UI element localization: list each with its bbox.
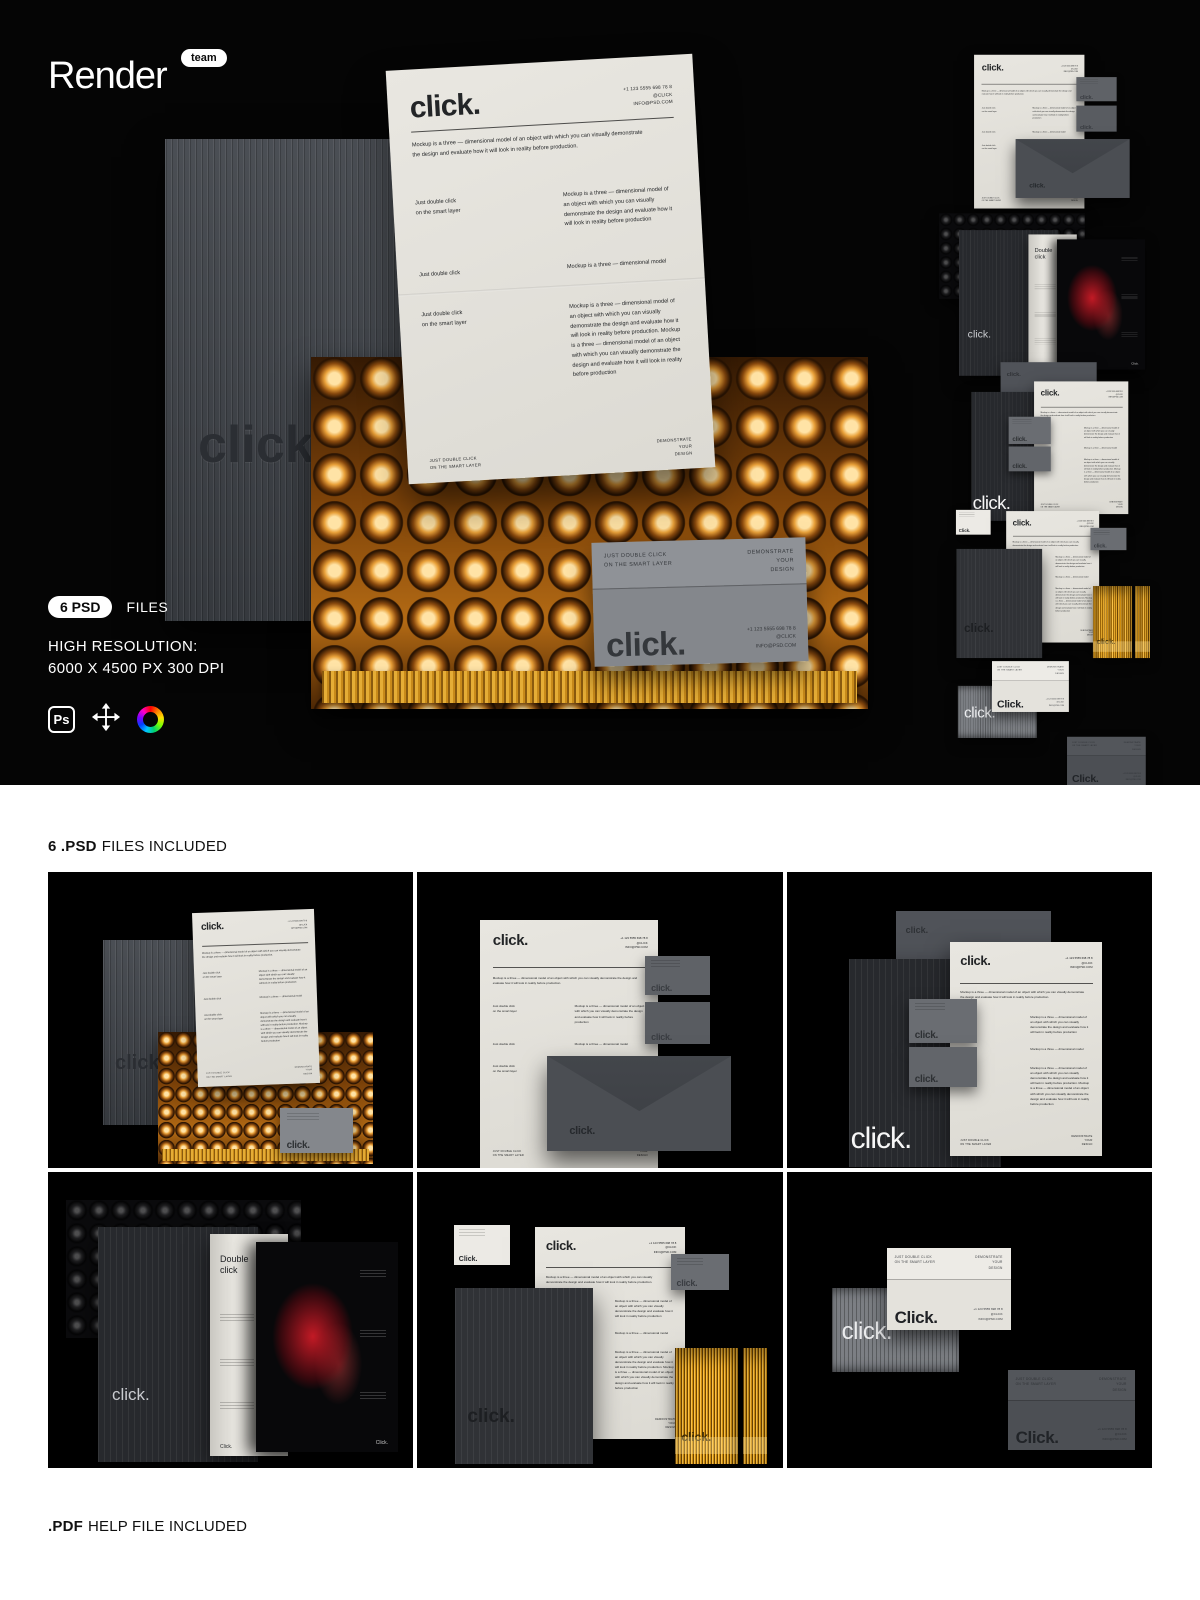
business-card-ribbed: click. [909, 1047, 977, 1087]
card-logo: click. [651, 1032, 672, 1042]
card-logo: click. [1094, 543, 1107, 549]
letterhead-paragraph: Mockup is a three — dimensional model [260, 994, 309, 1000]
card-crease [887, 1279, 1011, 1280]
business-card: click. [671, 1254, 729, 1290]
letterhead-paragraph: Mockup is a three — dimensional model of… [1055, 556, 1092, 569]
letterhead-paragraph: Mockup is a three — dimensional model [1030, 1047, 1091, 1052]
mockup-scene-dark-stationery: click. click. +1 123 5555 698 78 8@CLICK… [787, 872, 1152, 1167]
hero-section: Render team click. click. +1 123 5555 69… [0, 0, 1200, 785]
card-logo: Click. [1016, 1428, 1059, 1448]
resolution-line1: HIGH RESOLUTION: [48, 636, 224, 658]
folder-logo: click. [112, 1385, 150, 1405]
gallery-heading-rest: FILES INCLUDED [102, 838, 227, 855]
page-microtext [220, 1402, 254, 1411]
mockup-scene-magazine-black-mailer: click. Doubleclick Click. Click. [48, 1172, 413, 1467]
card-microtext [1080, 79, 1098, 83]
letterhead-rule [960, 983, 1092, 984]
move-icon [91, 702, 121, 737]
page-microtext [360, 1330, 386, 1339]
letterhead-footer-left: JUST DOUBLE CLICKON THE SMART LAYER [429, 454, 481, 471]
letterhead-logo: click. [960, 953, 990, 968]
letterhead-footer-left: JUST DOUBLE CLICKON THE SMART LAYER [960, 1139, 991, 1148]
letterhead-hint: Just double click [982, 130, 996, 133]
card-logo: click. [842, 1318, 892, 1346]
ribbed-dark-folder: click. [455, 1288, 593, 1464]
card-crease [593, 583, 807, 590]
letterhead-footer-right: DEMONSTRATEYOURDESIGN [1071, 1135, 1092, 1148]
card-contact: +1 123 5555 698 78 8@CLICKINFO@PSD.COM [1046, 698, 1064, 707]
letterhead-paragraph: Mockup is a three — dimensional model of… [569, 297, 685, 381]
letterhead-footer-right: DEMONSTRATEYOURDESIGN [295, 1066, 313, 1077]
feature-icons: Ps [48, 702, 164, 737]
letterhead-paragraph: Mockup is a three — dimensional model of… [1055, 587, 1092, 612]
letterhead-paragraph: Mockup is a three — dimensional model [1055, 576, 1092, 579]
mockup-scene-folder-letterhead-gold-mailer: click. click. +1 123 5555 698 78 8@CLICK… [48, 872, 413, 1167]
gallery-heading: 6 .PSDFILES INCLUDED [48, 838, 227, 855]
letterhead-intro: Mockup is a three — dimensional model of… [960, 990, 1085, 1000]
letterhead-paragraph: Mockup is a three — dimensional model of… [615, 1350, 675, 1391]
folder-logo: click. [467, 1406, 515, 1428]
card-demo: DEMONSTRATEYOURDESIGN [975, 1255, 1003, 1271]
letterhead-intro: Mockup is a three — dimensional model of… [1013, 541, 1089, 547]
letterhead-rule [1013, 536, 1094, 537]
card-microtext [459, 1229, 484, 1236]
card-contact: +1 123 5555 698 78 8@CLICKINFO@PSD.COM [747, 624, 796, 651]
dark-business-card: JUST DOUBLE CLICKON THE SMART LAYER DEMO… [1067, 737, 1146, 785]
photoshop-icon: Ps [48, 706, 75, 733]
letterhead-paragraph: Mockup is a three — dimensional model of… [563, 185, 677, 230]
page-microtext [1035, 284, 1056, 290]
thumbnail-letterhead-envelope: click. +1 123 5555 698 78 8@CLICKINFO@PS… [935, 25, 1165, 210]
card-microtext [959, 512, 975, 516]
letterhead-paragraph: Mockup is a three — dimensional model of… [575, 1004, 646, 1024]
card-logo: Click. [959, 529, 971, 533]
card-hint: JUST DOUBLE CLICKON THE SMART LAYER [1072, 741, 1097, 748]
card-contact: +1 123 5555 698 78 8@CLICKINFO@PSD.COM [1097, 1427, 1126, 1442]
magazine-title: Doubleclick [220, 1254, 249, 1276]
white-business-card: Click. [454, 1225, 510, 1265]
business-card: click. [645, 956, 710, 995]
letterhead-logo: click. [201, 921, 224, 933]
letterhead-hint: Just double clickon the smart layer [493, 1004, 517, 1014]
psd-files-row: 6 PSD FILES [48, 596, 168, 618]
letterhead-intro: Mockup is a three — dimensional model of… [546, 1275, 669, 1285]
overlay-logo: click. [851, 1122, 912, 1156]
mockup-scene-business-cards: click. JUST DOUBLE CLICKON THE SMART LAY… [787, 1172, 1152, 1467]
business-card-hero: JUST DOUBLE CLICKON THE SMART LAYER DEMO… [591, 537, 808, 667]
mockup-scene-business-cards: click. JUST DOUBLE CLICKON THE SMART LAY… [930, 614, 1156, 785]
card-logo: click. [915, 1030, 938, 1041]
card-microtext [915, 1003, 946, 1010]
letterhead-hint: Just double clickon the smart layer [415, 197, 461, 219]
letterhead-rule [546, 1267, 677, 1268]
thumbnail-business-cards: click. JUST DOUBLE CLICKON THE SMART LAY… [930, 614, 1160, 785]
pdf-help-rest: HELP FILE INCLUDED [88, 1518, 247, 1535]
envelope: click. [547, 1056, 731, 1151]
white-business-card: JUST DOUBLE CLICKON THE SMART LAYER DEMO… [992, 661, 1069, 712]
business-card-ribbed: click. [1076, 106, 1116, 132]
envelope: click. [1016, 139, 1130, 198]
card-crease [1067, 756, 1146, 757]
card-microtext [1012, 419, 1031, 423]
page-logo: Click. [220, 1444, 232, 1450]
envelope-logo: click. [1029, 182, 1045, 189]
card-logo: Click. [895, 1308, 938, 1328]
logo-wordmark: Render [48, 55, 167, 97]
letterhead-logo: click. [409, 88, 481, 126]
letterhead-footer-right: DEMONSTRATEYOURDESIGN [656, 435, 692, 458]
business-card-ribbed: click. [645, 1002, 710, 1044]
letterhead-intro: Mockup is a three — dimensional model of… [982, 89, 1072, 95]
card-demo: DEMONSTRATEYOURDESIGN [1047, 665, 1064, 675]
letterhead-hint: Just double clickon the smart layer [421, 309, 467, 331]
letterhead-footer-left: JUST DOUBLE CLICKON THE SMART LAYER [206, 1072, 232, 1080]
letterhead-logo: click. [1041, 388, 1060, 397]
card-logo: click. [287, 1140, 310, 1151]
letterhead-paragraph: Mockup is a three — dimensional model [615, 1331, 675, 1336]
letterhead-contact: +1 123 5555 698 78 8@CLICKINFO@PSD.COM [649, 1241, 676, 1255]
letterhead-paragraph: Mockup is a three — dimensional model of… [1084, 427, 1122, 440]
card-hint: JUST DOUBLE CLICKON THE SMART LAYER [895, 1255, 935, 1266]
letterhead-paragraph: Mockup is a three — dimensional model [575, 1042, 646, 1047]
card-logo: click. [651, 983, 672, 993]
grid-image-dark-stationery: click. click. +1 123 5555 698 78 8@CLICK… [787, 872, 1152, 1168]
card-microtext [287, 1113, 320, 1120]
gallery-section: 6 .PSDFILES INCLUDED click. click. +1 12… [0, 785, 1200, 1600]
grid-image-business-cards: click. JUST DOUBLE CLICKON THE SMART LAY… [787, 1172, 1152, 1468]
business-card: click. [1090, 528, 1126, 550]
grid-image-magazine-black-mailer: click. Doubleclick Click. Click. [48, 1172, 413, 1468]
card-logo: click. [606, 624, 687, 664]
letterhead-intro: Mockup is a three — dimensional model of… [412, 129, 645, 161]
color-wheel-icon [137, 706, 164, 733]
letterhead-paragraph: Mockup is a three — dimensional model of… [259, 968, 308, 986]
grid-image-folder-gold-mailer: click. click. +1 123 5555 698 78 8@CLICK… [48, 872, 413, 1168]
letterhead-paragraph: Mockup is a three — dimensional model of… [1033, 107, 1077, 120]
letterhead-contact: +1 123 5555 698 78 8@CLICKINFO@PSD.COM [1106, 390, 1123, 399]
team-badge: team [181, 49, 227, 67]
letterhead-hint: Just double click [204, 997, 222, 1002]
card-logo: click. [915, 1074, 938, 1085]
card-hint: JUST DOUBLE CLICKON THE SMART LAYER [997, 665, 1022, 672]
page-microtext [1121, 257, 1137, 263]
business-card: click. [280, 1108, 353, 1153]
paper-logo: click. [1007, 371, 1021, 377]
letterhead-hint: Just double clickon the smart layer [203, 971, 222, 980]
card-logo: click. [1080, 124, 1093, 130]
page-microtext [220, 1359, 254, 1368]
letterhead-hint: Just double click [419, 269, 461, 281]
book-logo: click. [681, 1430, 711, 1444]
letterhead-logo: click. [493, 932, 528, 949]
white-business-card: Click. [956, 510, 991, 535]
resolution-line2: 6000 X 4500 PX 300 DPI [48, 658, 224, 680]
letterhead-mockup: click. +1 123 5555 698 78 8@CLICKINFO@PS… [192, 909, 320, 1087]
mockup-scene-letterhead-envelope: click. +1 123 5555 698 78 8@CLICKINFO@PS… [935, 25, 1161, 208]
magazine-right-page: Click. [256, 1242, 398, 1452]
card-logo: Click. [997, 698, 1024, 710]
page-logo: Click. [376, 1440, 388, 1446]
letterhead-crease [398, 277, 705, 296]
letterhead-rule [1041, 407, 1123, 408]
letterhead-hint: Just double clickon the smart layer [982, 144, 997, 150]
resolution-note: HIGH RESOLUTION: 6000 X 4500 PX 300 DPI [48, 636, 224, 680]
letterhead-paragraph: Mockup is a three — dimensional model of… [1030, 1066, 1091, 1107]
letterhead-contact: +1 123 5555 698 78 8@CLICKINFO@PSD.COM [623, 83, 673, 108]
card-demo: DEMONSTRATEYOURDESIGN [1124, 741, 1141, 751]
card-microtext [651, 960, 680, 967]
letterhead-rule [493, 967, 648, 968]
business-card: click. [909, 999, 977, 1043]
psd-count-suffix: FILES [126, 599, 168, 615]
card-microtext [677, 1258, 703, 1265]
letterhead-paragraph: Mockup is a three — dimensional model of… [1030, 1015, 1091, 1035]
letterhead-footer-right: DEMONSTRATEYOURDESIGN [655, 1418, 676, 1431]
letterhead-logo: click. [982, 62, 1004, 73]
business-card: click. [1009, 417, 1051, 444]
page-microtext [360, 1270, 386, 1279]
card-hint: JUST DOUBLE CLICKON THE SMART LAYER [1016, 1377, 1056, 1388]
gold-ribbed-book: click. [675, 1348, 738, 1464]
mockup-scene-letterhead-gold-books: Click. click. +1 123 5555 698 78 8@CLICK… [417, 1172, 782, 1467]
renderteam-logo: Render team [48, 57, 167, 95]
grid-image-letterhead-envelope: click. +1 123 5555 698 78 8@CLICKINFO@PS… [417, 872, 782, 1168]
letterhead-intro: Mockup is a three — dimensional model of… [493, 976, 639, 986]
letterhead-hero: click. +1 123 5555 698 78 8@CLICKINFO@PS… [386, 54, 716, 484]
preview-grid: click. click. +1 123 5555 698 78 8@CLICK… [48, 872, 1152, 1468]
folder-logo: click. [198, 415, 328, 475]
letterhead-hint: Just double click [493, 1042, 515, 1047]
card-logo: click. [1012, 436, 1026, 443]
letterhead-hint: Just double clickon the smart layer [982, 107, 997, 113]
letterhead-contact: +1 123 5555 698 78 8@CLICKINFO@PSD.COM [1061, 65, 1078, 74]
card-crease [992, 680, 1069, 681]
business-card: click. [1076, 77, 1116, 101]
letterhead-paragraph: Mockup is a three — dimensional model [567, 257, 679, 273]
card-logo: click. [964, 705, 995, 722]
psd-count-badge: 6 PSD [48, 596, 112, 618]
letterhead-intro: Mockup is a three — dimensional model of… [202, 949, 302, 961]
letterhead-paragraph: Mockup is a three — dimensional model of… [260, 1010, 310, 1044]
envelope-logo: click. [569, 1125, 595, 1137]
card-logo: click. [677, 1278, 698, 1288]
gold-ribbed-book-spine [743, 1348, 767, 1464]
letterhead-rule [202, 942, 308, 947]
letterhead-contact: +1 123 5555 698 78 8@CLICKINFO@PSD.COM [620, 936, 647, 950]
letterhead-footer-left: JUST DOUBLE CLICKON THE SMART LAYER [493, 1150, 524, 1159]
card-contact: +1 123 5555 698 78 8@CLICKINFO@PSD.COM [973, 1307, 1002, 1322]
mockup-scene-letterhead-envelope: click. +1 123 5555 698 78 8@CLICKINFO@PS… [417, 872, 782, 1167]
card-microtext [1094, 530, 1110, 534]
card-demo: DEMONSTRATEYOURDESIGN [1099, 1377, 1127, 1393]
white-business-card: JUST DOUBLE CLICKON THE SMART LAYER DEMO… [887, 1248, 1011, 1330]
letterhead-logo: click. [546, 1238, 576, 1253]
card-demo: DEMONSTRATEYOURDESIGN [747, 548, 794, 577]
grid-image-letterhead-gold-books: Click. click. +1 123 5555 698 78 8@CLICK… [417, 1172, 782, 1468]
pdf-help-note: .PDFHELP FILE INCLUDED [48, 1518, 247, 1535]
card-crease [1008, 1400, 1135, 1401]
letterhead-intro: Mockup is a three — dimensional model of… [1041, 411, 1118, 417]
gallery-heading-bold: 6 .PSD [48, 838, 97, 855]
card-logo: Click. [1072, 773, 1099, 785]
paper-logo: click. [906, 925, 929, 935]
page-microtext [1121, 294, 1137, 300]
letterhead-contact: +1 123 5555 698 78 8@CLICKINFO@PSD.COM [287, 920, 307, 931]
pdf-help-bold: .PDF [48, 1518, 83, 1535]
letterhead-hint: Just double clickon the smart layer [204, 1013, 223, 1022]
card-logo: Click. [459, 1256, 478, 1263]
letterhead-paragraph: Mockup is a three — dimensional model of… [615, 1299, 675, 1319]
letterhead-rule [982, 84, 1078, 85]
letterhead-paragraph: Mockup is a three — dimensional model [1033, 130, 1077, 133]
page-microtext [220, 1314, 254, 1323]
page-microtext [360, 1392, 386, 1401]
letterhead-contact: +1 123 5555 698 78 8@CLICKINFO@PSD.COM [1065, 956, 1092, 970]
card-logo: click. [1012, 463, 1026, 470]
magazine-title: Doubleclick [1035, 247, 1053, 260]
card-contact: +1 123 5555 698 78 8@CLICKINFO@PSD.COM [1123, 772, 1141, 781]
card-hint: JUST DOUBLE CLICKON THE SMART LAYER [604, 551, 673, 571]
business-card-ribbed: click. [1009, 447, 1051, 472]
letterhead-paragraph: Mockup is a three — dimensional model [1084, 446, 1122, 449]
page-microtext [1035, 312, 1056, 318]
card-logo: click. [1080, 94, 1093, 100]
dark-business-card: JUST DOUBLE CLICKON THE SMART LAYER DEMO… [1008, 1370, 1135, 1450]
letterhead-logo: click. [1013, 518, 1032, 527]
letterhead-hint: Just double clickon the smart layer [493, 1064, 517, 1074]
